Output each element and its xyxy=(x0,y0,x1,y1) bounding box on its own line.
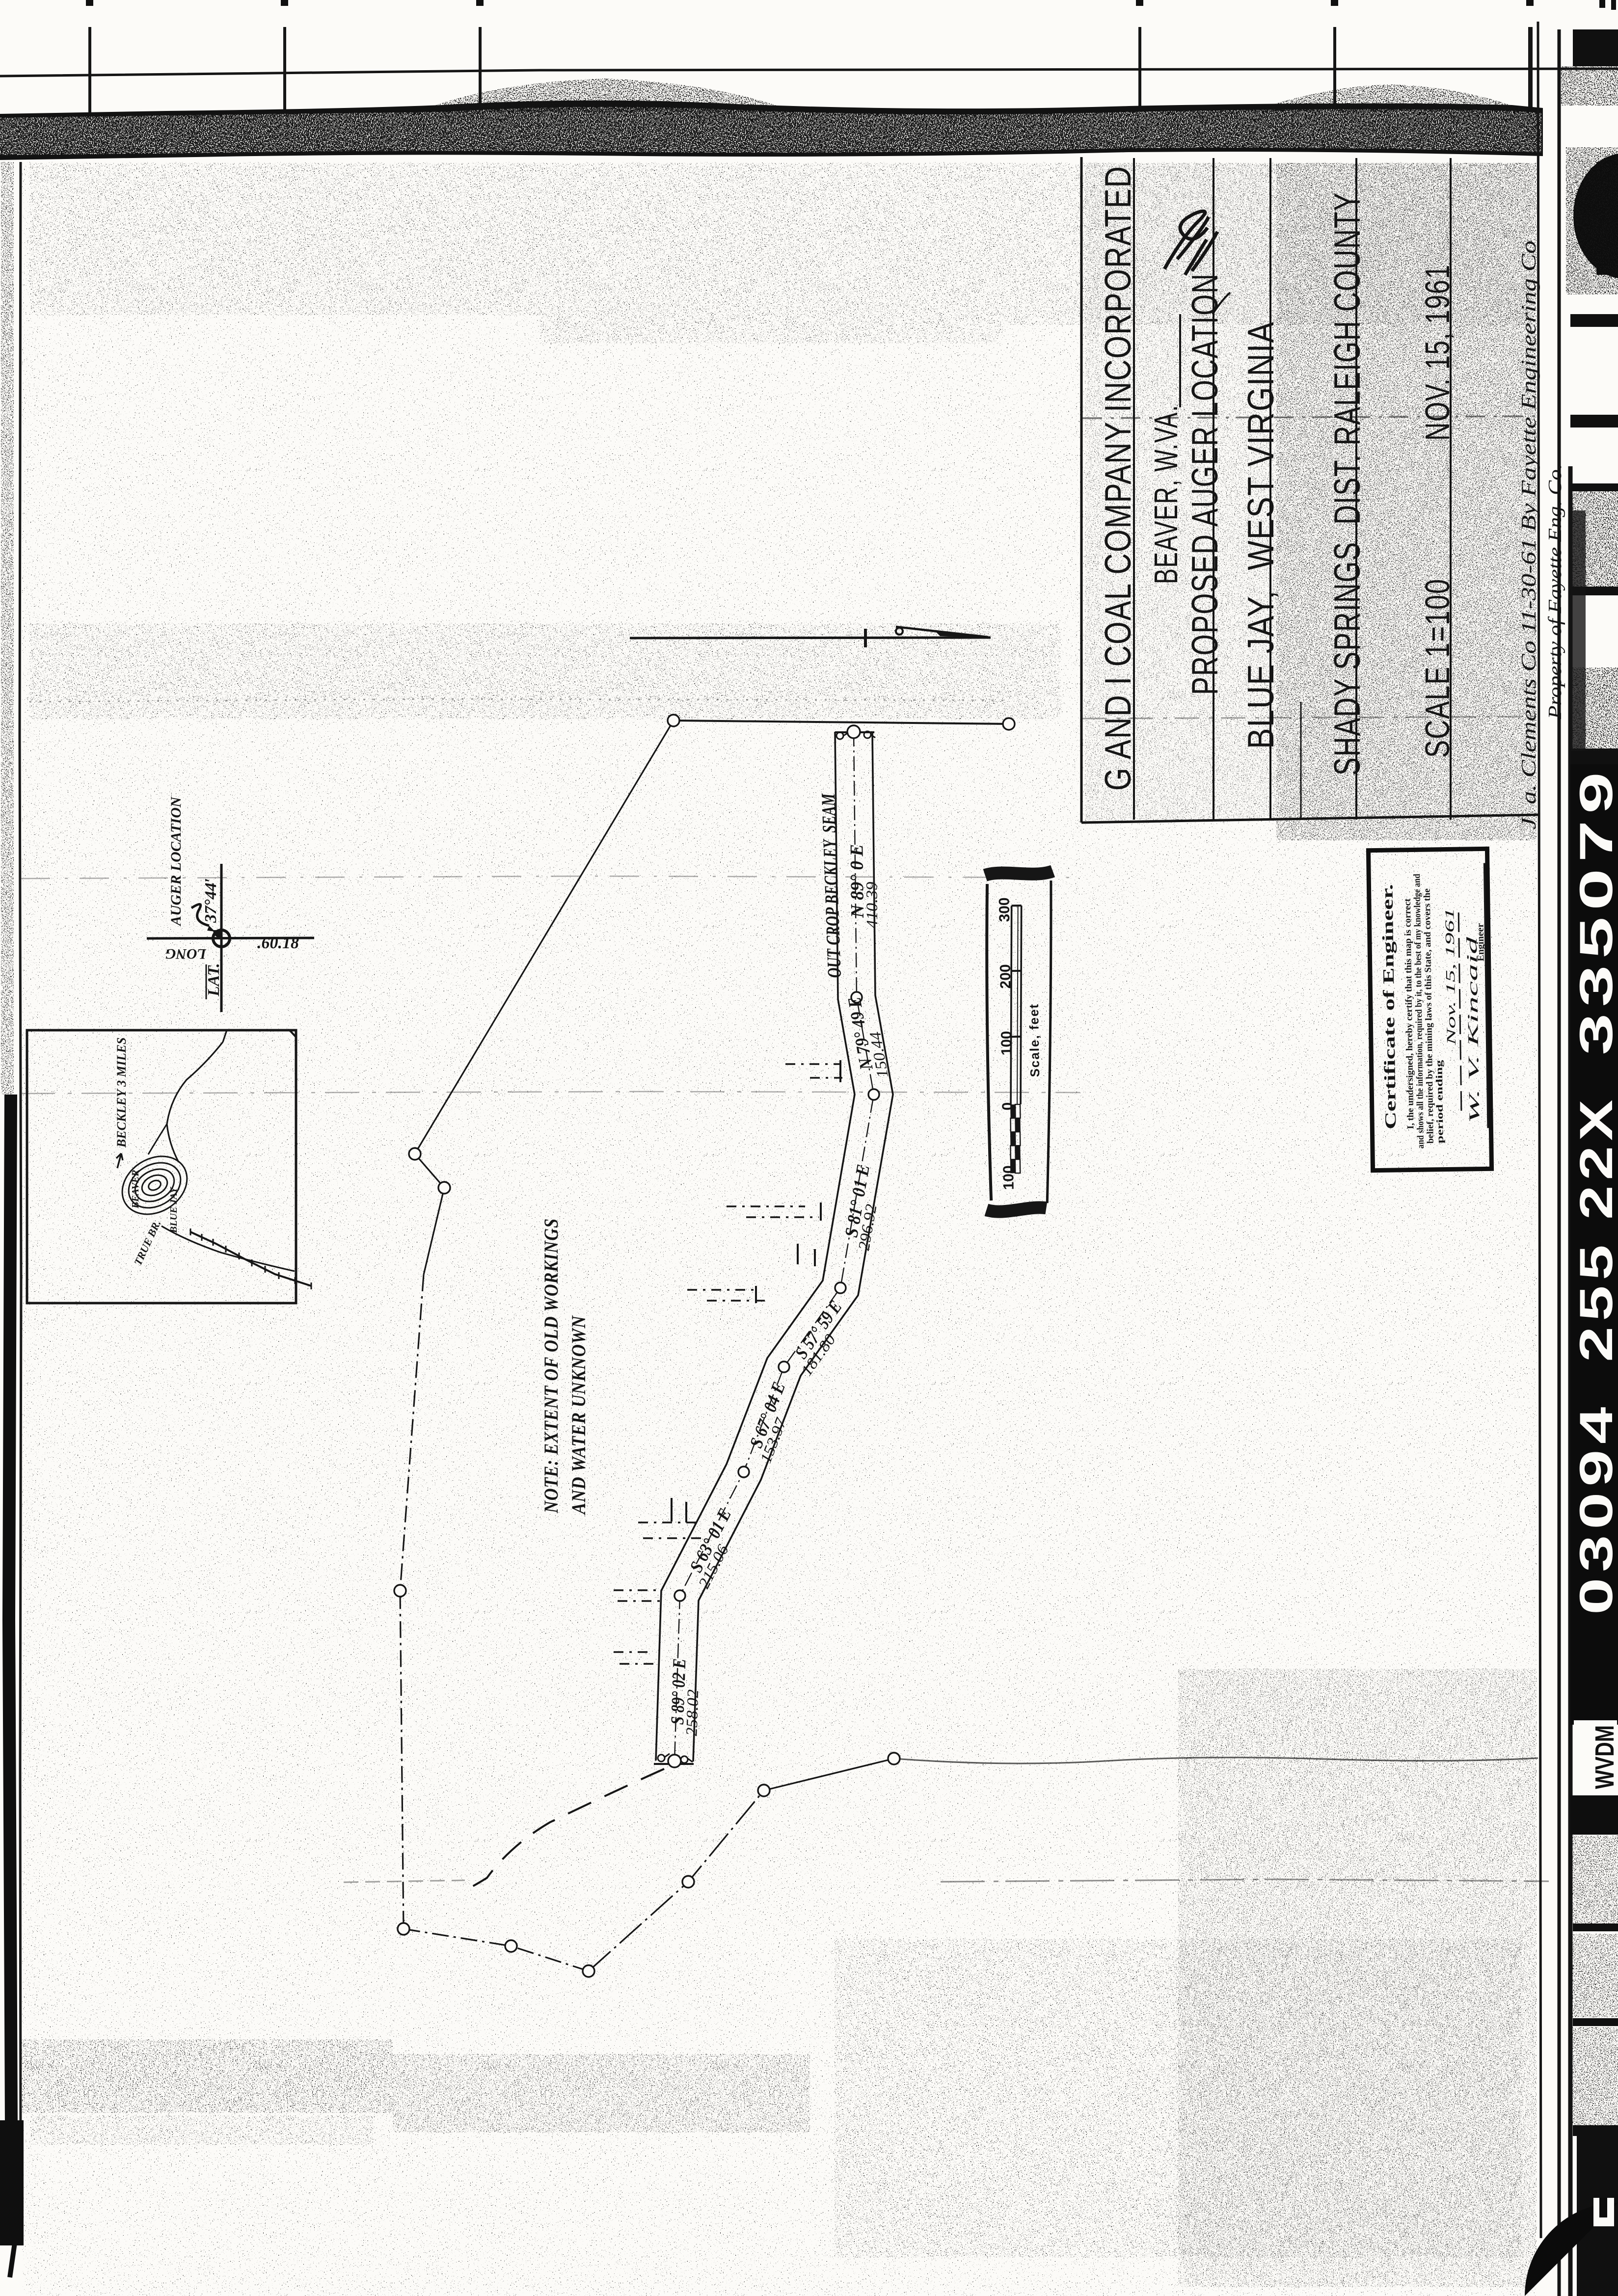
svg-text:410.39: 410.39 xyxy=(863,881,881,929)
svg-text:period ending: period ending xyxy=(1434,1060,1445,1144)
svg-text:W. V. Kincaid: W. V. Kincaid xyxy=(1464,935,1483,1123)
svg-text:BLUE JAY, WEST VIRGINIA: BLUE JAY, WEST VIRGINIA xyxy=(1241,321,1282,749)
svg-text:03094: 03094 xyxy=(1570,1401,1618,1615)
svg-text:Nov. 15, 1961: Nov. 15, 1961 xyxy=(1442,908,1458,1046)
svg-text:G AND I COAL COMPANY INCORPORA: G AND I COAL COMPANY INCORPORATED xyxy=(1098,165,1139,791)
svg-text:37°44′: 37°44′ xyxy=(202,878,220,923)
svg-text:J. a. Clements Co 11-30-61 By: J. a. Clements Co 11-30-61 By Fayette En… xyxy=(1518,240,1540,829)
svg-text:BLUE JAY: BLUE JAY xyxy=(168,1186,179,1233)
svg-text:Property of Fayette Eng. Co.: Property of Fayette Eng. Co. xyxy=(1545,464,1565,720)
svg-text:AND WATER UNKNOWN: AND WATER UNKNOWN xyxy=(567,1315,590,1516)
svg-text:100: 100 xyxy=(1000,1165,1017,1190)
svg-text:Scale, feet: Scale, feet xyxy=(1026,1003,1042,1077)
svg-text:100: 100 xyxy=(998,1031,1015,1056)
svg-text:SCALE 1=100: SCALE 1=100 xyxy=(1418,578,1456,758)
svg-text:200: 200 xyxy=(998,964,1014,989)
svg-text:22X: 22X xyxy=(1570,1095,1618,1220)
svg-text:AUGER LOCATION: AUGER LOCATION xyxy=(168,796,184,927)
svg-text:LONG: LONG xyxy=(165,946,207,962)
svg-text:258.02: 258.02 xyxy=(683,1689,702,1736)
svg-text:BEAVER: BEAVER xyxy=(130,1170,141,1209)
svg-text:WVDM: WVDM xyxy=(1590,1725,1618,1789)
svg-text:NOTE: EXTENT OF OLD WORKINGS: NOTE: EXTENT OF OLD WORKINGS xyxy=(540,1218,562,1514)
svg-text:PROPOSED AUGER LOCATION: PROPOSED AUGER LOCATION xyxy=(1185,273,1226,695)
svg-text:Certificate of Engineer.: Certificate of Engineer. xyxy=(1378,884,1399,1129)
svg-text:255: 255 xyxy=(1570,1239,1618,1362)
svg-text:BECKLEY 3 MILES: BECKLEY 3 MILES xyxy=(114,1038,129,1148)
svg-text:SHADY SPRINGS DIST. RALEIGH C: SHADY SPRINGS DIST. RALEIGH COUNTY xyxy=(1327,192,1368,775)
svg-text:NOV. 15, 1961: NOV. 15, 1961 xyxy=(1418,264,1456,441)
svg-text:BEAVER, W.VA.: BEAVER, W.VA. xyxy=(1148,404,1185,584)
svg-text:LAT.: LAT. xyxy=(205,963,223,997)
svg-text:Engineer: Engineer xyxy=(1475,923,1486,961)
svg-text:300: 300 xyxy=(996,897,1013,922)
svg-text:.60.18: .60.18 xyxy=(257,934,299,952)
svg-text:0: 0 xyxy=(999,1102,1016,1111)
svg-text:335079: 335079 xyxy=(1570,766,1618,1055)
